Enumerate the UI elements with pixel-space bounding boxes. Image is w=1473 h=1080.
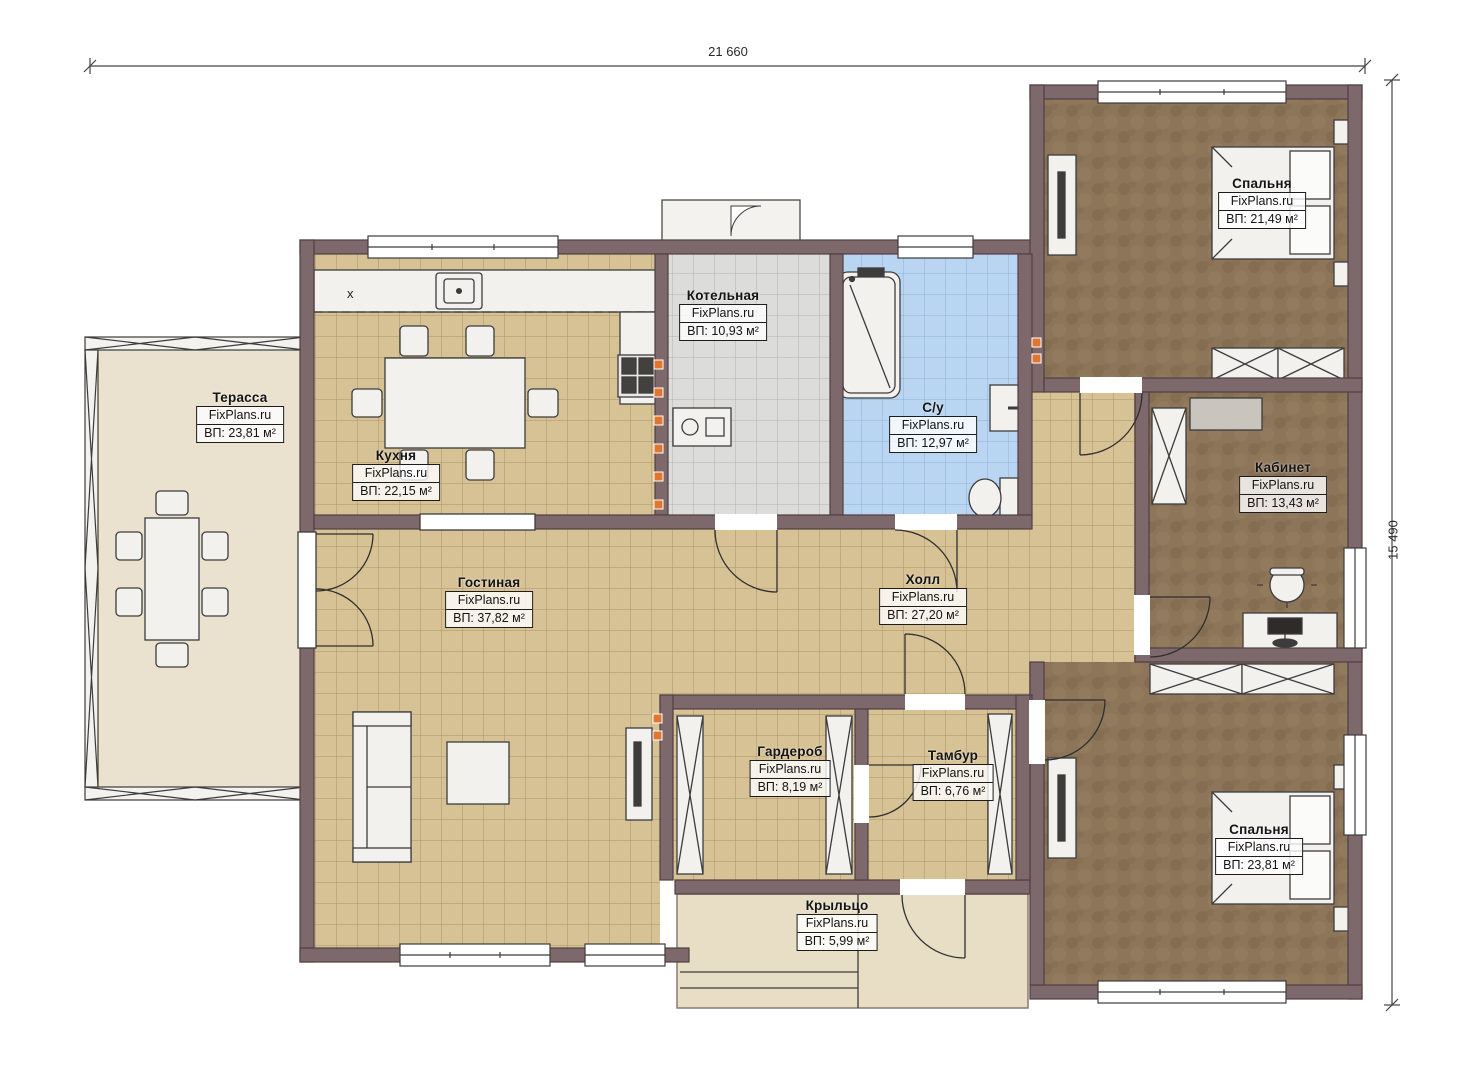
- room-name: Спальня: [1215, 822, 1303, 837]
- washbasin-icon: [990, 385, 1020, 431]
- wardrobe-top-bedroom: [1212, 348, 1344, 380]
- room-area: ВП: 23,81 м²: [197, 424, 283, 442]
- room-area: ВП: 22,15 м²: [353, 482, 439, 500]
- room-area: ВП: 37,82 м²: [446, 609, 532, 627]
- watermark-text: FixPlans.ru: [446, 592, 532, 609]
- watermark-text: FixPlans.ru: [1240, 477, 1326, 494]
- room-name: С/у: [889, 400, 977, 415]
- tv-living-icon: [626, 728, 652, 820]
- room-info-box: FixPlans.ru ВП: 27,20 м²: [879, 588, 967, 625]
- room-label-living: Гостиная FixPlans.ru ВП: 37,82 м²: [445, 575, 533, 628]
- dimension-height-label: 15 490: [1386, 520, 1401, 560]
- watermark-text: FixPlans.ru: [914, 765, 993, 782]
- stove-icon: [618, 355, 656, 397]
- room-label-porch: Крыльцо FixPlans.ru ВП: 5,99 м²: [797, 898, 878, 951]
- room-name: Крыльцо: [797, 898, 878, 913]
- watermark-text: FixPlans.ru: [880, 589, 966, 606]
- kitchen-opening: [420, 514, 535, 530]
- room-info-box: FixPlans.ru ВП: 8,19 м²: [750, 760, 831, 797]
- room-info-box: FixPlans.ru ВП: 23,81 м²: [1215, 838, 1303, 875]
- bathtub-icon: [838, 268, 900, 398]
- room-area: ВП: 13,43 м²: [1240, 494, 1326, 512]
- room-info-box: FixPlans.ru ВП: 37,82 м²: [445, 591, 533, 628]
- room-name: Терасса: [196, 390, 284, 405]
- hall-corridor-floor: [1032, 392, 1135, 532]
- tv-bottom-bedroom-icon: [1048, 758, 1076, 858]
- vent-shaft: [662, 200, 800, 242]
- living-window-2: [585, 944, 665, 966]
- room-area: ВП: 12,97 м²: [890, 434, 976, 452]
- watermark-text: FixPlans.ru: [751, 761, 830, 778]
- watermark-text: FixPlans.ru: [1216, 839, 1302, 856]
- tv-top-bedroom-icon: [1048, 155, 1076, 255]
- sink-icon: [436, 273, 482, 309]
- coffee-table-icon: [447, 742, 509, 804]
- floor-plan-page: x: [0, 0, 1473, 1080]
- watermark-text: FixPlans.ru: [890, 417, 976, 434]
- room-name: Холл: [879, 572, 967, 587]
- room-label-vestibule: Тамбур FixPlans.ru ВП: 6,76 м²: [913, 748, 994, 801]
- toilet-icon: [969, 478, 1018, 518]
- room-name: Гардероб: [750, 744, 831, 759]
- room-info-box: FixPlans.ru ВП: 10,93 м²: [679, 304, 767, 341]
- room-area: ВП: 27,20 м²: [880, 606, 966, 624]
- office-dresser: [1190, 398, 1262, 430]
- room-name: Кухня: [352, 448, 440, 463]
- kitchen-window: [368, 236, 558, 258]
- room-info-box: FixPlans.ru ВП: 5,99 м²: [797, 914, 878, 951]
- room-name: Спальня: [1218, 176, 1306, 191]
- room-label-hall: Холл FixPlans.ru ВП: 27,20 м²: [879, 572, 967, 625]
- watermark-text: FixPlans.ru: [197, 407, 283, 424]
- room-name: Кабинет: [1239, 460, 1327, 475]
- dimension-width-label: 21 660: [708, 44, 748, 59]
- living-window-1: [400, 944, 550, 966]
- room-area: ВП: 21,49 м²: [1219, 210, 1305, 228]
- room-info-box: FixPlans.ru ВП: 12,97 м²: [889, 416, 977, 453]
- boiler-unit: [673, 408, 731, 446]
- dimension-top: [84, 58, 1371, 74]
- room-label-boiler: Котельная FixPlans.ru ВП: 10,93 м²: [679, 288, 767, 341]
- watermark-text: FixPlans.ru: [1219, 193, 1305, 210]
- room-label-office: Кабинет FixPlans.ru ВП: 13,43 м²: [1239, 460, 1327, 513]
- room-name: Тамбур: [913, 748, 994, 763]
- room-label-terrace: Терасса FixPlans.ru ВП: 23,81 м²: [196, 390, 284, 443]
- bedroom-bottom-window-2: [1098, 981, 1286, 1003]
- watermark-text: FixPlans.ru: [680, 305, 766, 322]
- monitor-icon: [1268, 618, 1302, 647]
- floor-plan-drawing: x: [0, 0, 1473, 1080]
- room-name: Котельная: [679, 288, 767, 303]
- room-area: ВП: 10,93 м²: [680, 322, 766, 340]
- room-area: ВП: 8,19 м²: [751, 778, 830, 796]
- room-info-box: FixPlans.ru ВП: 22,15 м²: [352, 464, 440, 501]
- wardrobe-bottom-bedroom: [1150, 664, 1334, 694]
- room-name: Гостиная: [445, 575, 533, 590]
- room-area: ВП: 6,76 м²: [914, 782, 993, 800]
- sofa-icon: [353, 712, 411, 862]
- room-area: ВП: 5,99 м²: [798, 932, 877, 950]
- room-info-box: FixPlans.ru ВП: 13,43 м²: [1239, 476, 1327, 513]
- kitchen-counter-mark: x: [347, 286, 354, 301]
- room-info-box: FixPlans.ru ВП: 23,81 м²: [196, 406, 284, 443]
- bedroom-top-window: [1098, 81, 1286, 103]
- room-label-bathroom: С/у FixPlans.ru ВП: 12,97 м²: [889, 400, 977, 453]
- room-label-kitchen: Кухня FixPlans.ru ВП: 22,15 м²: [352, 448, 440, 501]
- office-wardrobe: [1152, 408, 1186, 504]
- room-label-bedroom-top: Спальня FixPlans.ru ВП: 21,49 м²: [1218, 176, 1306, 229]
- room-label-wardrobe: Гардероб FixPlans.ru ВП: 8,19 м²: [750, 744, 831, 797]
- office-window: [1344, 548, 1366, 648]
- desk-icon: [1243, 613, 1337, 651]
- bedroom-bottom-window: [1344, 735, 1366, 835]
- watermark-text: FixPlans.ru: [353, 465, 439, 482]
- room-info-box: FixPlans.ru ВП: 21,49 м²: [1218, 192, 1306, 229]
- bathroom-window: [898, 236, 973, 258]
- room-info-box: FixPlans.ru ВП: 6,76 м²: [913, 764, 994, 801]
- watermark-text: FixPlans.ru: [798, 915, 877, 932]
- room-label-bedroom-bottom: Спальня FixPlans.ru ВП: 23,81 м²: [1215, 822, 1303, 875]
- room-area: ВП: 23,81 м²: [1216, 856, 1302, 874]
